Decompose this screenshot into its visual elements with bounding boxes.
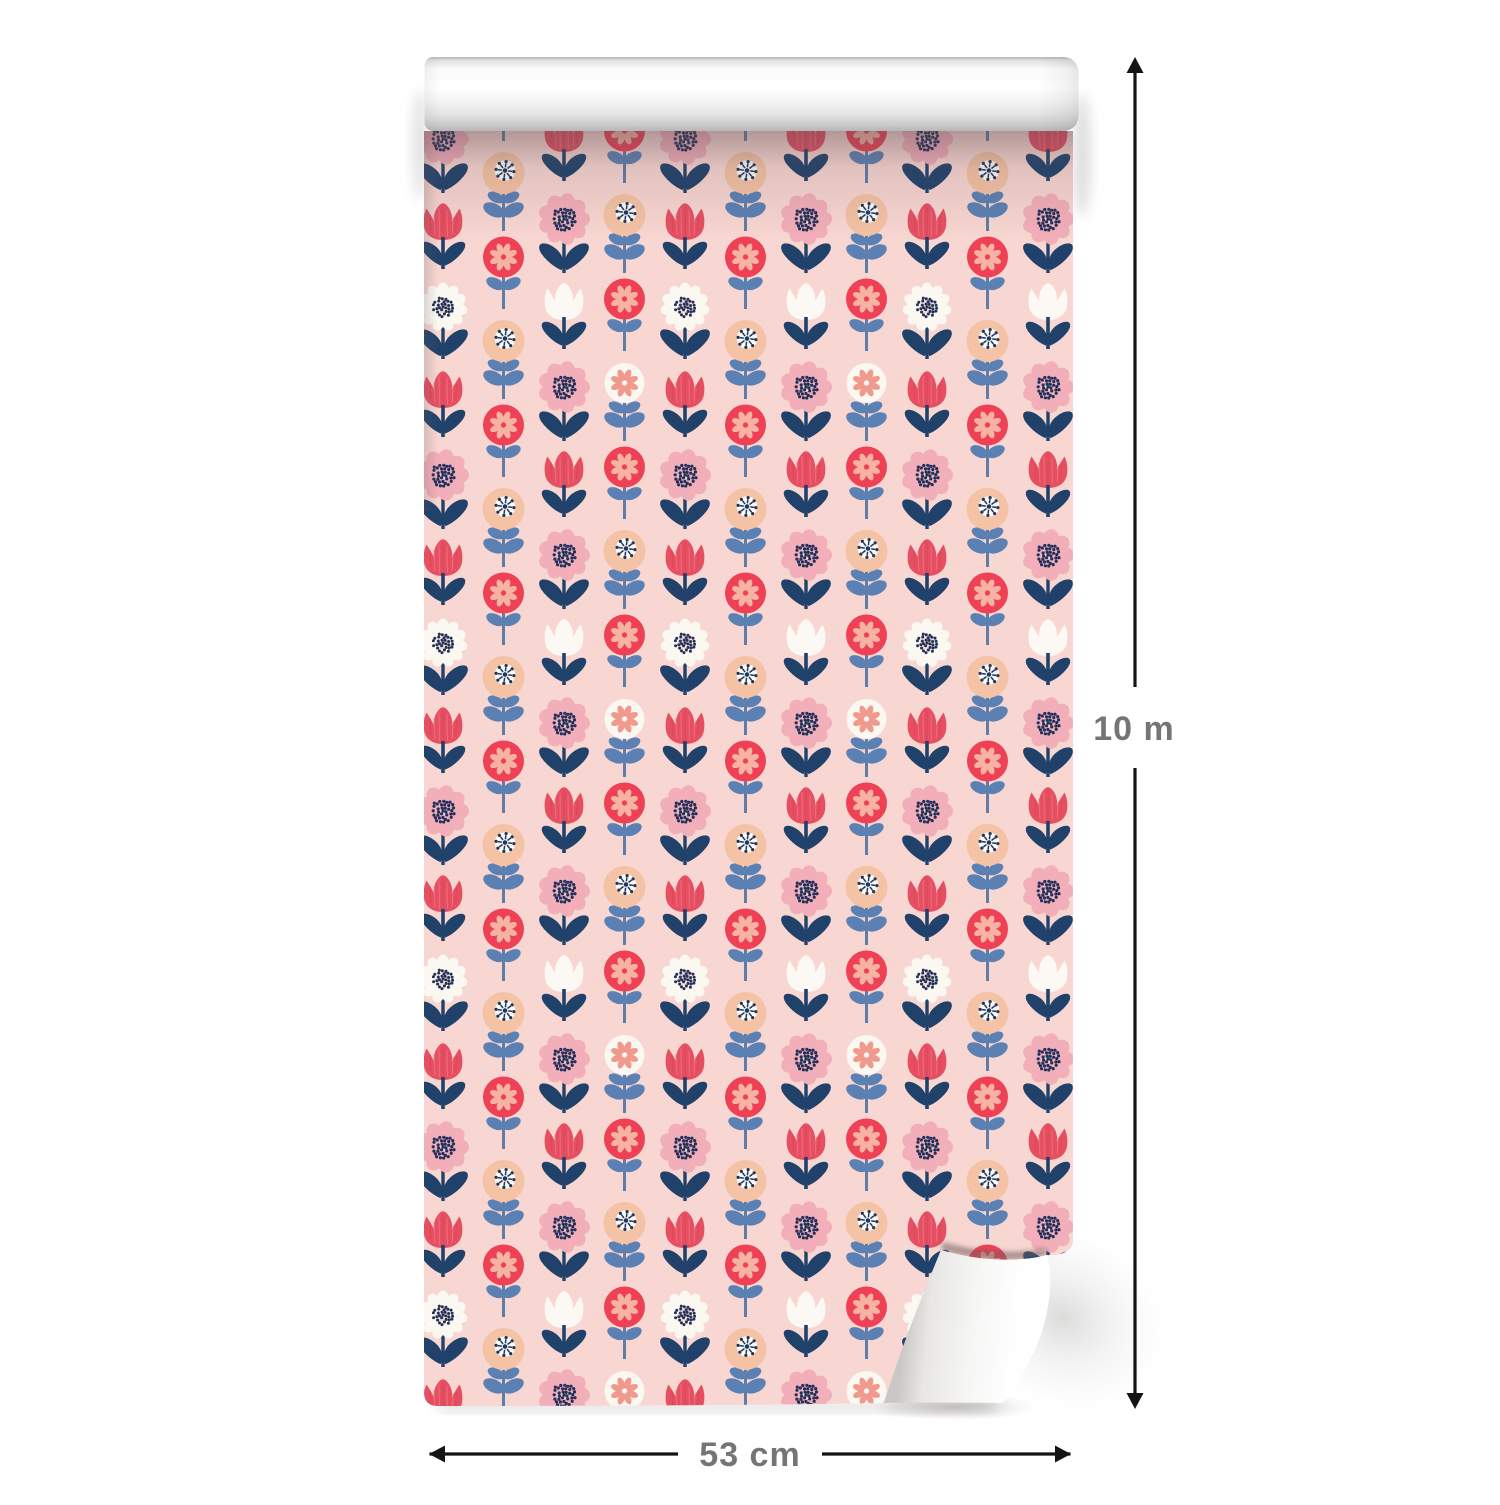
svg-text:10 m: 10 m	[1093, 710, 1175, 748]
svg-text:53 cm: 53 cm	[699, 1436, 800, 1474]
